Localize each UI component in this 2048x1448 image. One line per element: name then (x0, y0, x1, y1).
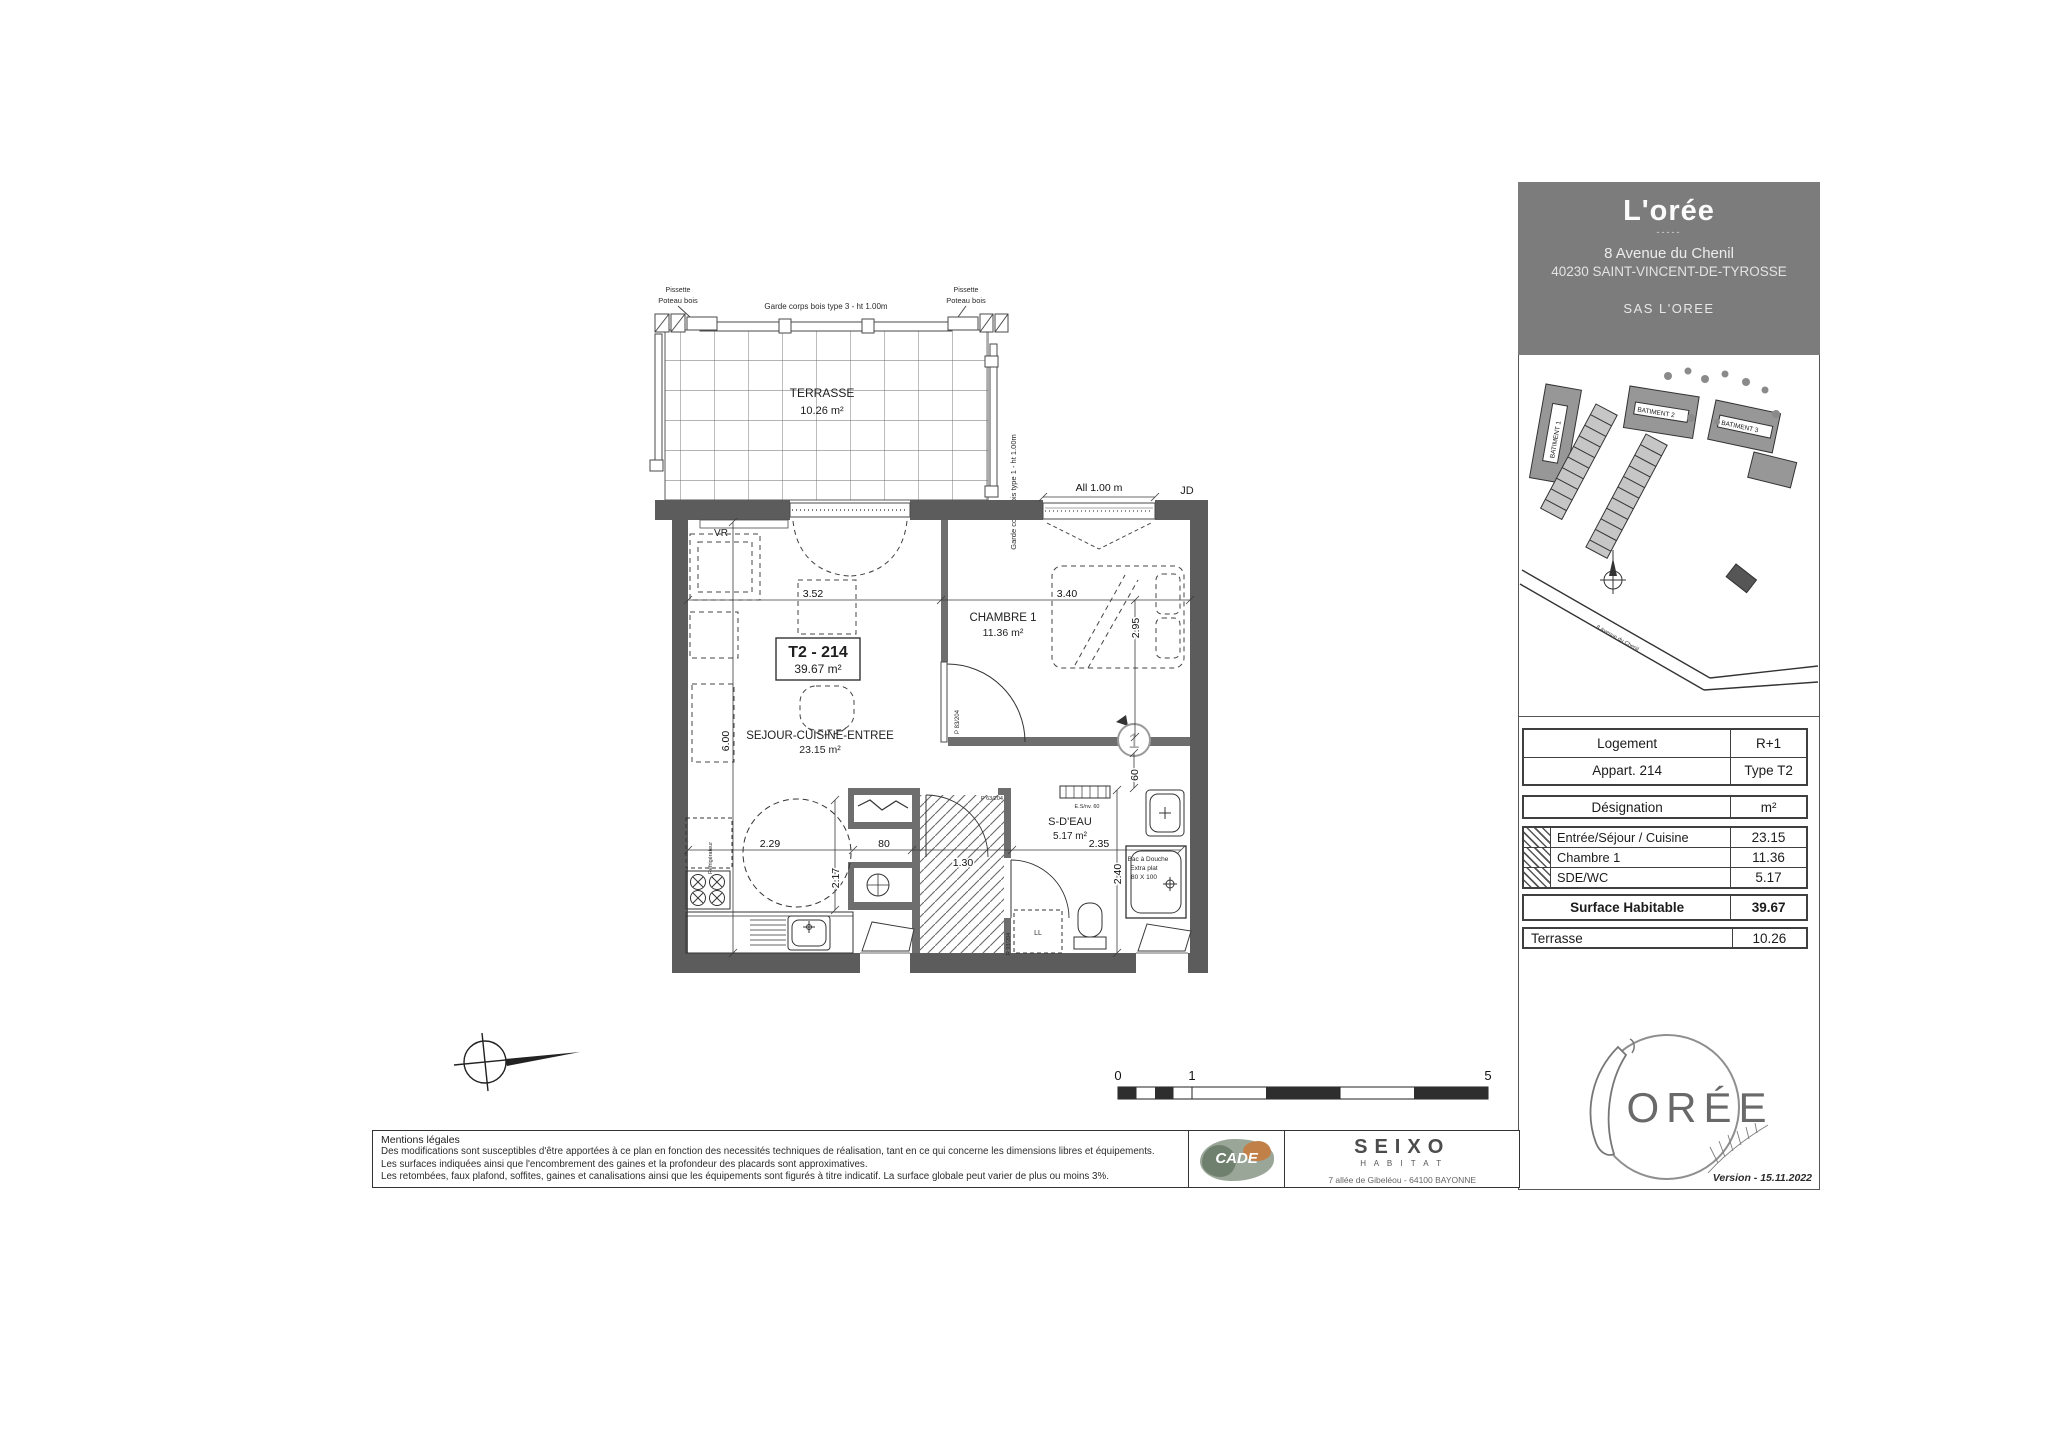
room-name: SDE/WC (1551, 870, 1730, 885)
table-row: SDE/WC 5.17 (1524, 867, 1806, 887)
sdeau-name: S-D'EAU (1048, 816, 1092, 828)
dim-kitchen-h: 2.17 (830, 868, 842, 889)
site-batiment-3: BATIMENT 3 (1708, 400, 1781, 453)
header-divider: ----- (1518, 228, 1820, 236)
version-label: Version - 15.11.2022 (1600, 1172, 1812, 1184)
legal-line: Les surfaces indiquées ainsi que l'encom… (381, 1159, 1180, 1172)
room-area: 11.36 (1730, 848, 1806, 867)
door-entree-label: R 93/204 (1006, 933, 1012, 955)
poteau-bois-right-label: Poteau bois (946, 296, 986, 305)
panel-divider (1518, 716, 1820, 717)
terrace-door (790, 503, 910, 576)
legal-line: Des modifications sont susceptibles d'êt… (381, 1146, 1180, 1159)
washer-label: LL (1034, 930, 1042, 937)
room-area: 5.17 (1730, 868, 1806, 887)
legal-title: Mentions légales (381, 1134, 1180, 1146)
unit-info-table: Logement R+1 Appart. 214 Type T2 (1522, 728, 1808, 786)
sdeau-area: 5.17 m² (1053, 831, 1088, 842)
shower-label-3: 80 X 100 (1131, 874, 1157, 881)
sejour-area: 23.15 m² (799, 744, 841, 756)
project-title: L'orée (1518, 195, 1820, 228)
dim-niche: 60 (1129, 769, 1141, 781)
table-row: Entrée/Séjour / Cuisine 23.15 (1524, 828, 1806, 847)
section-marker: 1 (1116, 715, 1150, 756)
svg-text:0: 0 (1114, 1068, 1121, 1083)
terrasse-value: 10.26 (1732, 929, 1806, 947)
legal-line: Les retombées, faux plafond, soffites, g… (381, 1171, 1180, 1184)
pissette-left-label: Pissette (666, 287, 691, 294)
unit-label: m² (1730, 797, 1806, 817)
project-address-line1: 8 Avenue du Chenil (1518, 245, 1820, 262)
terrace-area: 10.26 m² (800, 405, 844, 417)
dim-chambre-h: 2.95 (1130, 618, 1142, 639)
site-road (1520, 570, 1818, 690)
bedroom-window (1043, 503, 1155, 549)
total-label: Surface Habitable (1524, 900, 1730, 915)
jd-label: JD (1180, 485, 1194, 497)
dim-sejour-w: 3.52 (803, 588, 824, 600)
table-row: Logement R+1 (1524, 730, 1806, 757)
hatch-swatch (1524, 828, 1551, 847)
garde-corps-top-label: Garde corps bois type 3 - ht 1.00m (764, 302, 888, 311)
seixo-logo-text: SEIXO (1285, 1136, 1519, 1159)
door-sdb-label: P 63/204 (981, 796, 1003, 802)
site-building-4 (1748, 452, 1797, 488)
room-area: 23.15 (1730, 828, 1806, 847)
terrace-name: TERRASSE (790, 386, 855, 400)
scale-bar: 0 1 5 (1114, 1068, 1491, 1099)
table-row: Appart. 214 Type T2 (1524, 757, 1806, 785)
sejour-name: SEJOUR-CUISINE-ENTREE (746, 730, 894, 742)
designation-label: Désignation (1524, 800, 1730, 815)
table-row: Surface Habitable 39.67 (1524, 896, 1806, 919)
dim-sejour-h: 6.00 (720, 731, 732, 752)
garde-corps-side-label: Garde corps bois type 1 - ht 1.00m (1009, 434, 1018, 549)
site-batiment-2: BATIMENT 2 (1623, 386, 1699, 438)
seixo-logo-cell: SEIXO H A B I T A T 7 allée de Gibeléou … (1284, 1131, 1519, 1187)
svg-text:5: 5 (1484, 1068, 1491, 1083)
roller-shutter-box (700, 520, 788, 528)
logement-value: R+1 (1730, 730, 1806, 757)
poteau-bois-left-label: Poteau bois (658, 296, 698, 305)
legal-notice: Mentions légales Des modifications sont … (373, 1131, 1188, 1187)
room-name: Chambre 1 (1551, 850, 1730, 865)
appart-label: Appart. 214 (1524, 763, 1730, 778)
shower-label-2: Extra plat (1130, 865, 1158, 872)
site-road-label: 8 Avenue du Chenil (1595, 625, 1640, 653)
radiator-label: E.S/nv. 60 (1075, 804, 1100, 810)
site-small-building (1726, 564, 1756, 593)
total-value: 39.67 (1730, 896, 1806, 919)
total-table: Surface Habitable 39.67 (1522, 894, 1808, 921)
shower-label-1: Bac à Douche (1128, 856, 1169, 863)
compass-icon (454, 1033, 580, 1091)
unit-label-box: T2 - 214 39.67 m² (776, 638, 860, 680)
project-header: L'orée ----- 8 Avenue du Chenil 40230 SA… (1518, 182, 1820, 355)
pissette-right-label: Pissette (954, 287, 979, 294)
table-row: Chambre 1 11.36 (1524, 847, 1806, 867)
oree-logo: ORÉE (1552, 1025, 1832, 1185)
terrasse-label: Terrasse (1524, 931, 1732, 946)
icade-logo-cell: CADE (1188, 1131, 1285, 1187)
hatch-swatch (1524, 848, 1551, 867)
project-address-line2: 40230 SAINT-VINCENT-DE-TYROSSE (1518, 264, 1820, 279)
seixo-address: 7 allée de Gibeléou - 64100 BAYONNE (1285, 1175, 1519, 1185)
icade-logo-text: CADE (1200, 1150, 1274, 1167)
terrasse-table: Terrasse 10.26 (1522, 927, 1808, 949)
oree-logo-swoosh (1591, 1047, 1626, 1155)
door-chambre-label: P 83/204 (955, 709, 961, 734)
dim-kitchen-w: 2.29 (760, 838, 781, 850)
dim-placard: 80 (878, 838, 890, 850)
chambre-area: 11.36 m² (983, 627, 1024, 639)
dim-hall: 1.30 (953, 857, 974, 869)
svg-text:T2 - 214: T2 - 214 (788, 644, 848, 661)
seixo-habitat-text: H A B I T A T (1285, 1159, 1519, 1168)
rooms-table: Entrée/Séjour / Cuisine 23.15 Chambre 1 … (1522, 826, 1808, 889)
project-company: SAS L'OREE (1518, 301, 1820, 316)
table-row: Désignation m² (1524, 797, 1806, 817)
chambre-name: CHAMBRE 1 (969, 612, 1036, 624)
dim-chambre-w: 3.40 (1057, 588, 1078, 600)
dim-sdeau-w: 2.35 (1089, 838, 1110, 850)
svg-text:1: 1 (1188, 1068, 1195, 1083)
room-name: Entrée/Séjour / Cuisine (1551, 830, 1730, 845)
hatch-swatch (1524, 868, 1551, 887)
appart-value: Type T2 (1730, 758, 1806, 785)
entrance-hall-hatch (920, 795, 1004, 953)
icade-logo: CADE (1200, 1139, 1274, 1181)
table-row: Terrasse 10.26 (1524, 929, 1806, 947)
terrace (650, 306, 1008, 500)
footer-strip: Mentions légales Des modifications sont … (372, 1130, 1520, 1188)
fridge-label: Réfrigérateur (708, 842, 714, 874)
bedroom-furniture (1052, 566, 1184, 668)
logement-label: Logement (1524, 736, 1730, 751)
dim-sdeau-h: 2.40 (1112, 864, 1124, 885)
window-sill-dim: All 1.00 m (1076, 482, 1123, 494)
site-plan: BATIMENT 1 BATIMENT 2 BATIMENT 3 (1518, 356, 1820, 714)
oree-logo-text: ORÉE (1626, 1084, 1773, 1131)
svg-text:39.67 m²: 39.67 m² (794, 662, 841, 676)
designation-header-table: Désignation m² (1522, 795, 1808, 819)
